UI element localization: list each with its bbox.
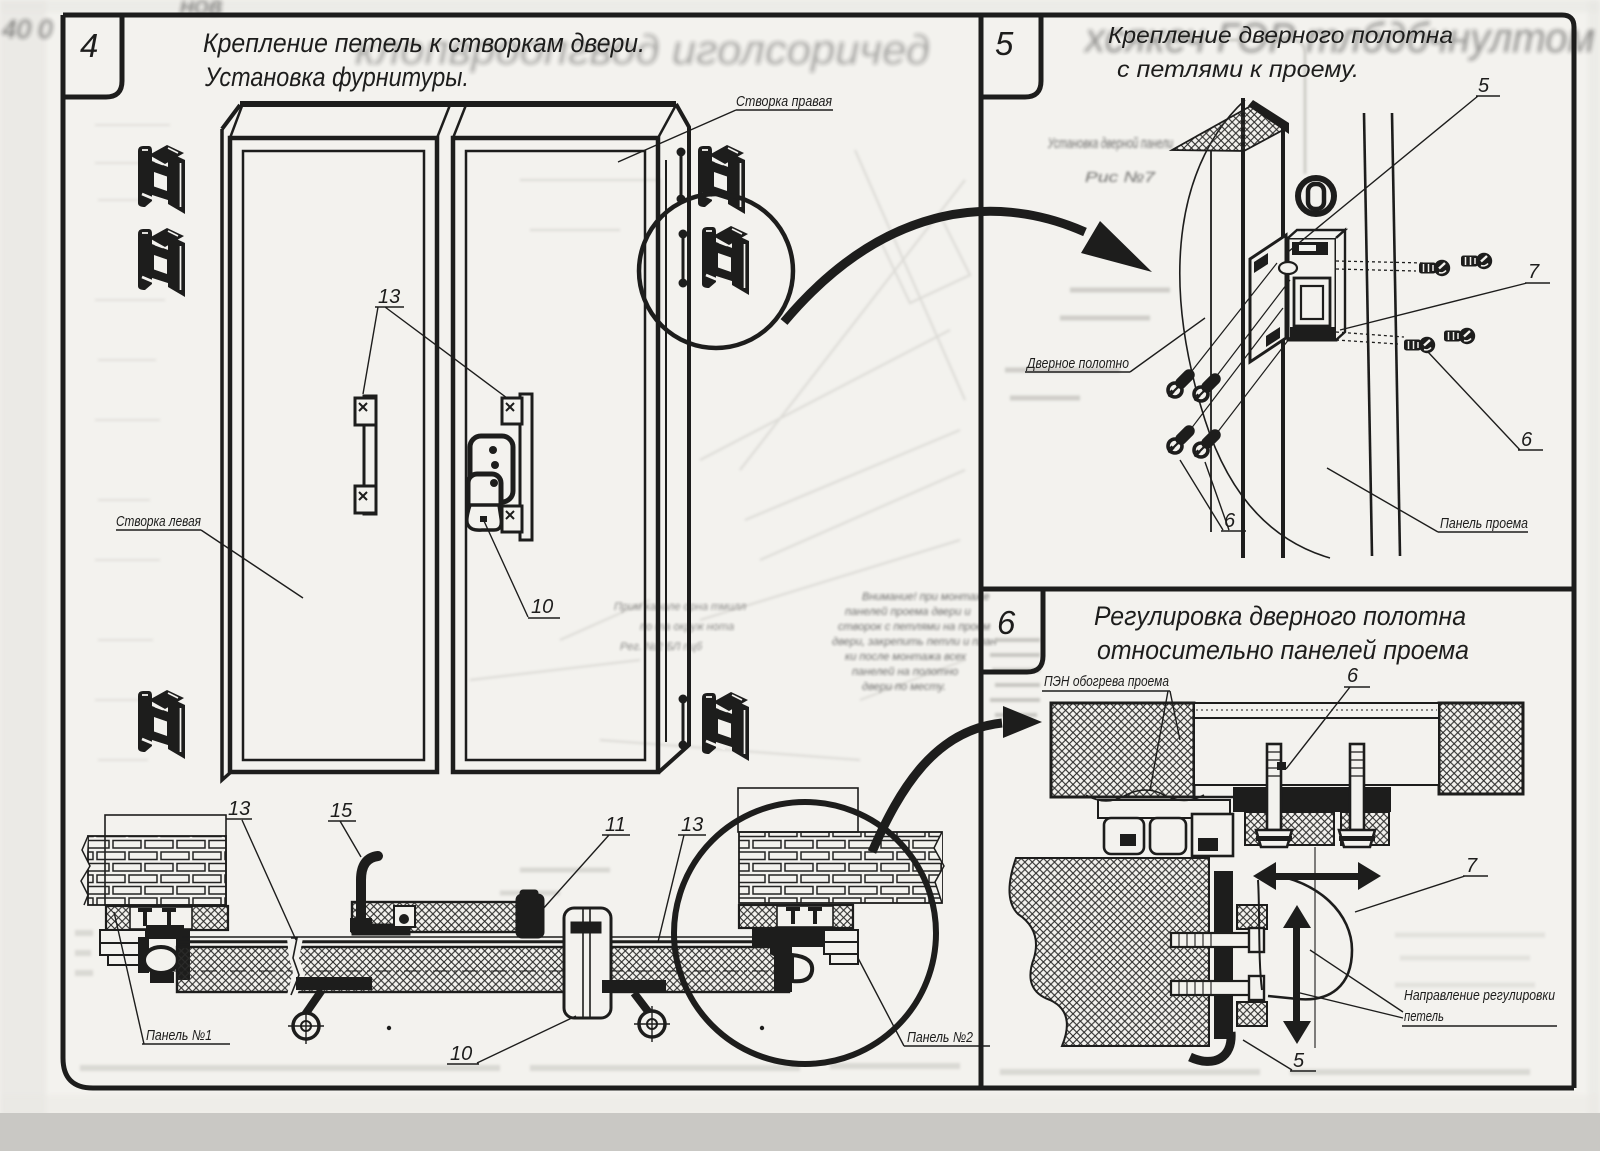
svg-text:10: 10 (531, 596, 553, 618)
svg-text:6: 6 (1347, 665, 1359, 687)
svg-text:с петлями к проему.: с петлями к проему. (1117, 56, 1359, 82)
svg-text:10: 10 (450, 1043, 472, 1065)
svg-text:13: 13 (681, 814, 703, 836)
svg-text:Панель проема: Панель проема (1440, 516, 1528, 532)
svg-text:Крепление петель к створкам дв: Крепление петель к створкам двери. (203, 28, 645, 58)
svg-text:Крепление дверного полотна: Крепление дверного полотна (1108, 22, 1453, 48)
svg-text:петель: петель (1404, 1009, 1444, 1025)
svg-text:7: 7 (1528, 261, 1540, 283)
svg-text:11: 11 (605, 814, 626, 836)
svg-text:13: 13 (378, 286, 400, 308)
svg-text:ПЭН обогрева проема: ПЭН обогрева проема (1044, 674, 1169, 690)
svg-text:панелей на полотно: панелей на полотно (852, 666, 958, 678)
svg-text:двери, закрепить петли и план: двери, закрепить петли и план (832, 636, 997, 648)
svg-text:6: 6 (1521, 429, 1533, 451)
svg-text:панелей проема двери и: панелей проема двери и (845, 606, 971, 618)
svg-text:Прим канале орна тмилл: Прим канале орна тмилл (614, 601, 746, 613)
svg-text:двери по месту.: двери по месту. (862, 681, 946, 693)
svg-text:Рис №7: Рис №7 (1085, 169, 1156, 186)
svg-text:Створка левая: Створка левая (116, 514, 201, 530)
svg-text:Установка фурнитуры.: Установка фурнитуры. (204, 62, 469, 92)
svg-text:створок с петлями на проем: створок с петлями на проем (838, 621, 991, 633)
svg-text:относительно панелей проема: относительно панелей проема (1097, 635, 1469, 665)
svg-text:40 0: 40 0 (2, 14, 53, 44)
svg-text:Панель №2: Панель №2 (907, 1030, 973, 1046)
svg-text:6: 6 (997, 604, 1016, 641)
svg-text:7: 7 (1466, 855, 1478, 877)
svg-text:Панель №1: Панель №1 (146, 1028, 212, 1044)
svg-text:Створка правая: Створка правая (736, 94, 832, 110)
svg-text:5: 5 (995, 25, 1014, 62)
svg-text:Дверное полотно: Дверное полотно (1025, 356, 1129, 372)
svg-text:Регулировка дверного полотна: Регулировка дверного полотна (1094, 601, 1466, 631)
svg-text:5: 5 (1293, 1050, 1305, 1072)
svg-text:15: 15 (330, 800, 353, 822)
svg-text:5: 5 (1478, 75, 1490, 97)
svg-text:Направление регулировки: Направление регулировки (1404, 988, 1555, 1004)
svg-text:ки после монтажа всех: ки после монтажа всех (845, 651, 967, 663)
svg-text:4: 4 (80, 27, 98, 64)
svg-text:13: 13 (228, 798, 250, 820)
svg-text:Внимание! при монтаже: Внимание! при монтаже (862, 591, 989, 603)
svg-text:Установка дверной панели: Установка дверной панели (1047, 135, 1173, 152)
